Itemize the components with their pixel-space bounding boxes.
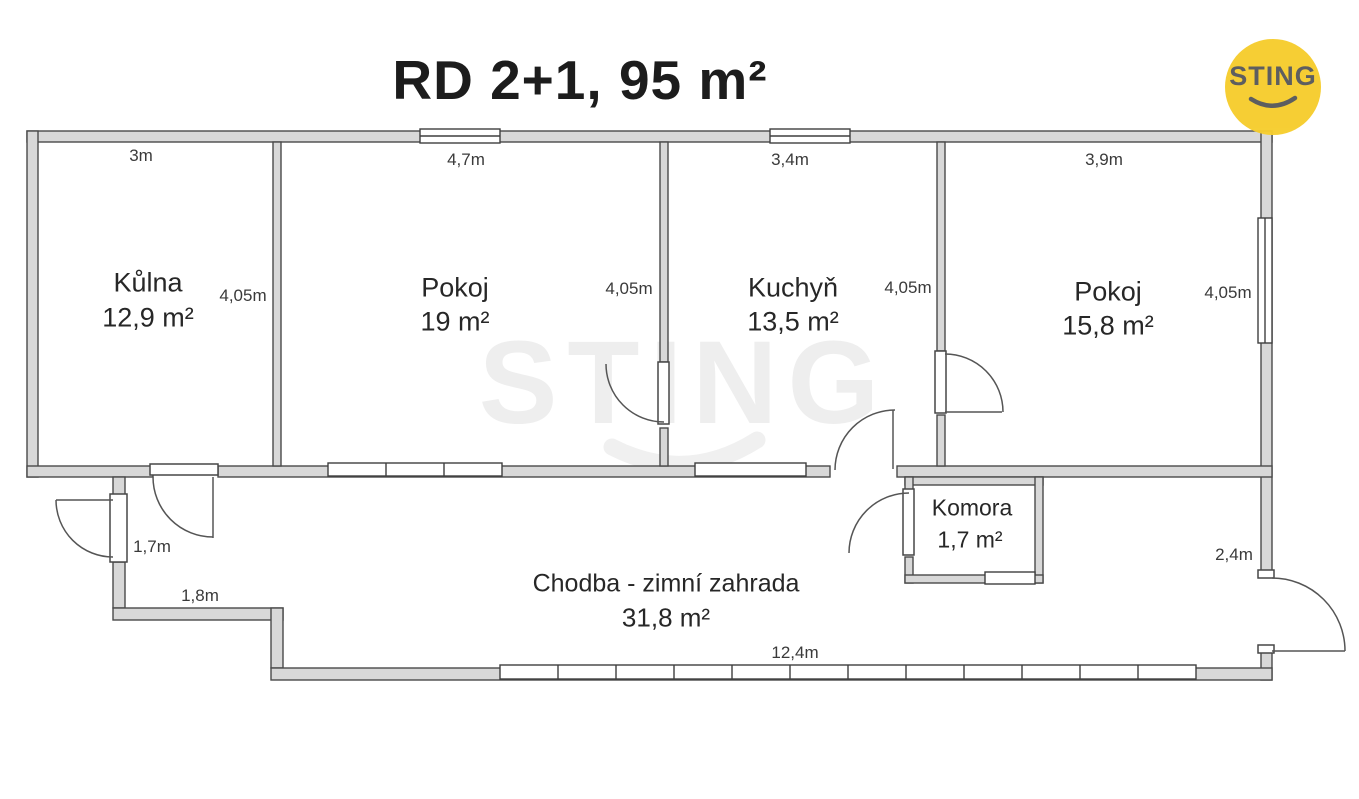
dim-kulna-width: 3m — [129, 146, 153, 166]
sting-logo-label: STING — [1229, 63, 1317, 90]
sting-logo: STING — [1225, 39, 1321, 135]
dim-hall-right: 2,4m — [1215, 545, 1253, 565]
room-area-chodba: 31,8 m² — [622, 603, 710, 634]
dim-hall-glazing: 12,4m — [771, 643, 818, 663]
page-title: RD 2+1, 95 m² — [392, 48, 767, 112]
room-area-kuchyn: 13,5 m² — [747, 307, 839, 338]
room-label-pokoj2: Pokoj — [1074, 277, 1142, 308]
room-area-kulna: 12,9 m² — [102, 303, 194, 334]
room-area-pokoj2: 15,8 m² — [1062, 311, 1154, 342]
room-label-komora: Komora — [932, 495, 1013, 522]
dim-pokoj2-depth: 4,05m — [1204, 283, 1251, 303]
floorplan-page: STING — [0, 0, 1359, 799]
dim-hall-step: 1,8m — [181, 586, 219, 606]
dim-kulna-depth: 4,05m — [219, 286, 266, 306]
dim-pokoj1-width: 4,7m — [447, 150, 485, 170]
dim-hall-door: 1,7m — [133, 537, 171, 557]
room-label-kulna: Kůlna — [113, 268, 182, 299]
room-label-chodba: Chodba - zimní zahrada — [533, 570, 800, 599]
room-area-pokoj1: 19 m² — [420, 307, 489, 338]
room-label-kuchyn: Kuchyň — [748, 273, 838, 304]
room-label-pokoj1: Pokoj — [421, 273, 489, 304]
dim-pokoj1-depth: 4,05m — [605, 279, 652, 299]
floorplan-svg — [0, 0, 1359, 799]
dim-pokoj2-width: 3,9m — [1085, 150, 1123, 170]
room-area-komora: 1,7 m² — [937, 527, 1002, 554]
windows — [328, 129, 1272, 679]
watermark-smile-icon — [612, 440, 757, 464]
dim-kuchyn-depth: 4,05m — [884, 278, 931, 298]
dim-kuchyn-width: 3,4m — [771, 150, 809, 170]
smile-icon — [1244, 94, 1302, 112]
